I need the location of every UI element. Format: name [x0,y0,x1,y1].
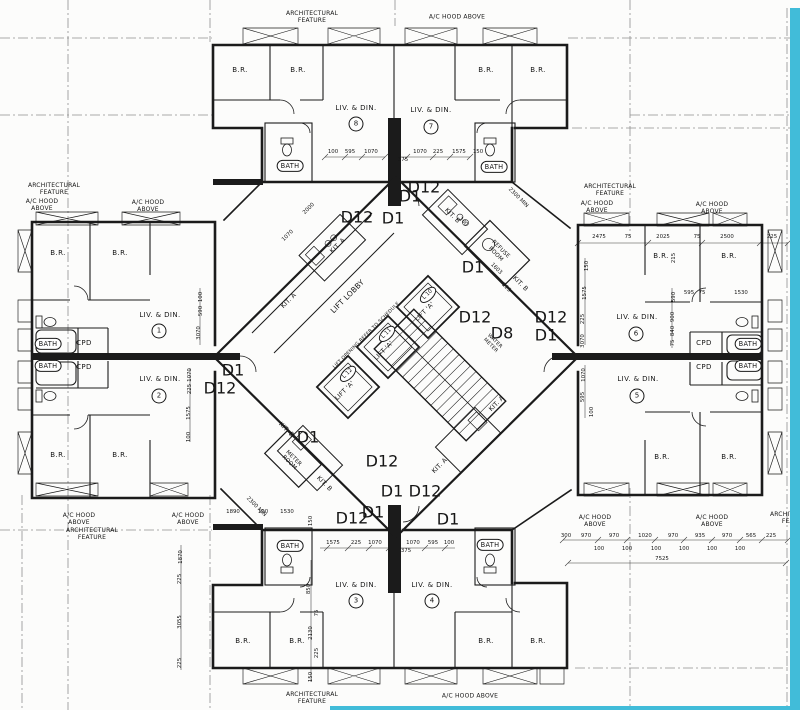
dims-label-42: 970 [609,533,619,539]
dims-label-0: 100 [328,149,338,155]
unit8-br1: B.R. [232,66,247,74]
arch-feature-left-top: ARCHITECTURAL FEATURE [28,182,80,196]
unit6-br1: B.R. [653,252,668,260]
unit2-cpd: CPD [76,363,92,371]
dims-label-61: 595 [428,540,438,546]
unit1-bath: BATH [35,338,62,350]
dims-label-13: 225 [767,234,777,240]
dims-label-33: 225 [187,384,193,394]
dims-label-67: 850 [306,584,312,594]
dims-label-24: 100 [589,407,595,417]
dims-label-40: 300 [561,533,571,539]
unit2-bath: BATH [35,360,62,372]
unit7-br1: B.R. [478,66,493,74]
doors-label-13: D1 [381,483,404,502]
dims-label-8: 2475 [592,234,606,240]
dims-label-25: 590 [671,292,677,302]
unit3-living: LIV. & DIN. [335,581,376,589]
unit8-bath: BATH [277,160,304,172]
dims-label-14: 595 [684,290,694,296]
dims-label-44: 970 [668,533,678,539]
unit7-living: LIV. & DIN. [410,106,451,114]
dims-label-73: 2300 MIN [245,496,268,519]
unit6-bath: BATH [735,338,762,350]
ac-hood-bottom: A/C HOOD ABOVE [442,692,498,699]
lift12-label: LIFT 'A' [334,380,356,402]
dims-label-62: 100 [444,540,454,546]
dims-label-36: 1870 [178,550,184,564]
unit5-br1: B.R. [654,453,669,461]
arch-feature-left-bot: ARCHITECTURAL FEATURE [66,527,118,541]
dims-label-23: 595 [580,392,586,402]
dims-label-51: 100 [651,546,661,552]
lift10-label: LIFT 'A' [414,301,436,323]
unit2-br2: B.R. [112,451,127,459]
dims-label-66: 150 [308,516,314,526]
unit4-br2: B.R. [530,637,545,645]
dims-label-76: 100 [457,216,469,228]
dims-label-49: 100 [594,546,604,552]
dims-label-39: 225 [177,658,183,668]
dims-label-17: 215 [671,253,677,263]
kitchen-a-unit8: KIT. A [329,237,347,255]
unit4-bath: BATH [477,539,504,551]
dims-label-53: 100 [707,546,717,552]
unit3-br2: B.R. [289,637,304,645]
arch-feature-top: ARCHITECTURAL FEATURE [286,10,338,24]
unit1-br1: B.R. [50,249,65,257]
dims-label-19: 1575 [582,286,588,300]
unit1-living: LIV. & DIN. [139,311,180,319]
unit5-br2: B.R. [721,453,736,461]
dims-label-50: 100 [622,546,632,552]
dims-label-69: 2130 [308,626,314,640]
dims-label-71: 150 [308,672,314,682]
unit5-cpd: CPD [696,363,712,371]
ac-hood-left-bot-1: A/C HOOD ABOVE [63,512,95,526]
dims-label-60: 1070 [406,540,420,546]
unit8-number: 8 [349,117,364,132]
dims-label-37: 225 [177,574,183,584]
dims-label-72: 2300 MIN [507,187,530,210]
dims-label-78: 225 [500,282,512,294]
dims-label-52: 100 [679,546,689,552]
dims-label-26: 900 [670,312,676,322]
dims-label-35: 100 [186,432,192,442]
dims-label-47: 565 [746,533,756,539]
dims-label-63: 1890 [226,509,240,515]
dims-label-59: 375 [401,548,411,554]
dims-label-68: 75 [314,610,320,617]
doors-label-12: D12 [366,453,399,472]
ac-hood-left-top-2: A/C HOOD ABOVE [132,199,164,213]
unit7-number: 7 [424,120,439,135]
dims-label-41: 970 [581,533,591,539]
unit4-number: 4 [425,594,440,609]
kitchen-b-unit6: KIT. B [511,275,529,293]
lift-lobby: LIFT LOBBY [329,278,366,315]
doors-label-10: D1 [535,327,558,346]
unit7-bath: BATH [481,161,508,173]
refuse-room: REFUSE ROOM [485,239,511,265]
dims-label-31: 3070 [196,326,202,340]
dims-label-56: 1575 [326,540,340,546]
doors-label-3: D1 [382,210,405,229]
dims-label-65: 1530 [280,509,294,515]
scan-edge-stripe-right [790,8,800,710]
dims-label-3: 375 [398,157,408,163]
doors-label-1: D12 [408,179,441,198]
unit5-number: 5 [630,389,645,404]
unit4-living: LIV. & DIN. [411,581,452,589]
unit6-living: LIV. & DIN. [616,313,657,321]
ac-hood-right-top-2: A/C HOOD ABOVE [696,201,728,215]
dims-label-4: 1070 [413,149,427,155]
unit1-cpd: CPD [76,339,92,347]
kitchen-a-unit5: KIT. A [488,395,506,413]
ac-hood-left-bot-2: A/C HOOD ABOVE [172,512,204,526]
unit3-number: 3 [349,594,364,609]
unit5-bath: BATH [735,360,762,372]
dims-label-32: 1070 [187,368,193,382]
ac-hood-right-bot-1: A/C HOOD ABOVE [579,514,611,528]
scan-edge-stripe-bottom [330,706,800,710]
lift11-label: LIFT 'A' [373,340,395,362]
dims-label-43: 1020 [638,533,652,539]
dims-label-70: 225 [314,648,320,658]
dims-label-45: 935 [695,533,705,539]
doors-label-5: D12 [204,380,237,399]
doors-label-16: D12 [336,510,369,529]
doors-label-6: D1 [462,259,485,278]
ac-hood-right-top-1: A/C HOOD ABOVE [581,200,613,214]
unit2-living: LIV. & DIN. [139,375,180,383]
ac-hood-right-bot-2: A/C HOOD ABOVE [696,514,728,528]
unit8-br2: B.R. [290,66,305,74]
dims-label-21: 3070 [580,334,586,348]
dims-label-18: 150 [584,261,590,271]
dims-label-20: 225 [580,314,586,324]
unit1-number: 1 [152,324,167,339]
kitchen-b-unit2: KIT. B [277,421,295,439]
doors-label-8: D8 [491,325,514,344]
ac-hood-top: A/C HOOD ABOVE [429,13,485,20]
dims-label-55: 7525 [655,556,669,562]
dims-label-5: 225 [433,149,443,155]
dims-label-2: 1070 [364,149,378,155]
dims-label-46: 970 [722,533,732,539]
unit7-br2: B.R. [530,66,545,74]
unit2-br1: B.R. [50,451,65,459]
meter-room: METER ROOM [279,449,302,472]
dims-label-7: 150 [473,149,483,155]
kitchen-a-unit1: KIT. A [280,292,298,310]
floorplan-canvas: ARCHITECTURAL FEATUREA/C HOOD ABOVEARCHI… [0,0,800,710]
unit6-br2: B.R. [721,252,736,260]
dims-label-74: 2000 [302,202,316,216]
arch-feature-right-top: ARCHITECTURAL FEATURE [584,183,636,197]
unit6-number: 6 [629,327,644,342]
unit8-living: LIV. & DIN. [335,104,376,112]
doors-label-2: D12 [341,209,374,228]
dims-label-34: 1575 [186,406,192,420]
doors-label-17: D1 [437,511,460,530]
dims-label-22: 1070 [581,368,587,382]
unit2-number: 2 [152,389,167,404]
dims-label-6: 1575 [452,149,466,155]
dims-label-16: 1530 [734,290,748,296]
unit1-br2: B.R. [112,249,127,257]
unit3-bath: BATH [277,540,304,552]
unit6-cpd: CPD [696,339,712,347]
kitchen-b-unit3: KIT. B [315,475,333,493]
dims-label-1: 595 [345,149,355,155]
unit4-br1: B.R. [478,637,493,645]
dims-label-48: 225 [766,533,776,539]
doors-label-7: D12 [459,309,492,328]
dims-label-29: 100 [198,292,204,302]
unit5-living: LIV. & DIN. [617,375,658,383]
dims-label-38: 3055 [177,615,183,629]
annotation-layer: ARCHITECTURAL FEATUREA/C HOOD ABOVEARCHI… [0,0,800,710]
dims-label-54: 100 [735,546,745,552]
dims-label-75: 1070 [281,229,295,243]
dims-label-30: 590 [198,306,204,316]
unit3-br1: B.R. [235,637,250,645]
doors-label-11: D1 [297,429,320,448]
dims-label-58: 1070 [368,540,382,546]
doors-label-14: D12 [409,483,442,502]
dims-label-27: 840 [670,326,676,336]
dims-label-9: 75 [625,234,632,240]
ac-hood-left-top-1: A/C HOOD ABOVE [26,198,58,212]
dims-label-57: 225 [351,540,361,546]
arch-feature-bottom: ARCHITECTURAL FEATURE [286,691,338,705]
dims-label-10: 2025 [656,234,670,240]
kitchen-a-unit4: KIT. A [431,457,449,475]
dims-label-15: 75 [699,290,706,296]
dims-label-11: 75 [694,234,701,240]
dims-label-28: 75 [670,340,676,347]
dims-label-12: 2500 [720,234,734,240]
